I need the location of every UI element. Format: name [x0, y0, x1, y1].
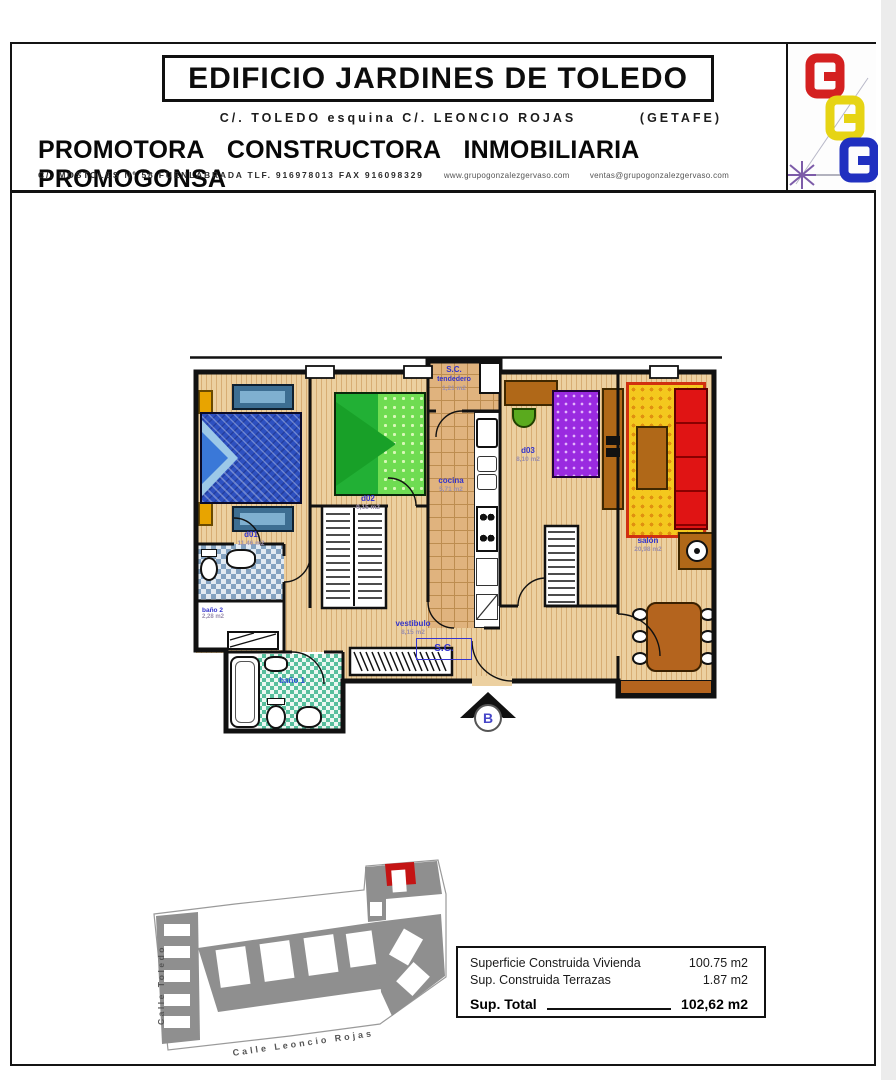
company-logo [786, 44, 876, 190]
summary-label: Superficie Construida Vivienda [470, 955, 641, 972]
room-label-d02: d02 [333, 494, 403, 503]
summary-row-vivienda: Superficie Construida Vivienda 100.75 m2 [470, 955, 748, 972]
header: EDIFICIO JARDINES DE TOLEDO C/. TOLEDO e… [12, 44, 784, 190]
contact-address: C/. MOSTOLES Nº 58 FUENLABRADA TLF. 9169… [38, 170, 424, 180]
shaft [480, 363, 500, 393]
room-area-cocina: 5,71 m2 [429, 486, 473, 493]
dishwasher-diagonal [477, 595, 497, 619]
summary-row-terrazas: Sup. Construida Terrazas 1.87 m2 [470, 972, 748, 989]
site-plan: Calle Toledo Calle Leoncio Rojas [140, 852, 470, 1067]
room-area-d01: 11,46 m2 [216, 540, 286, 547]
room-area-d02: 9,15 m2 [333, 504, 403, 511]
room-label-d03: d03 [493, 446, 563, 455]
company-line: PROMOTORA CONSTRUCTORA INMOBILIARIA PROM… [38, 136, 784, 194]
hanger-comb-d03 [548, 532, 575, 602]
logo-star-icon [788, 161, 816, 189]
logo-g-yellow [830, 100, 861, 136]
summary-value: 1.87 m2 [703, 972, 748, 989]
contact-email: ventas@grupogonzalezgervaso.com [590, 171, 729, 180]
floor-plan: d01 11,46 m2 d02 9,15 m2 d03 8,10 m2 coc… [188, 356, 728, 756]
room-area-vestibulo: 8,15 m2 [373, 629, 453, 636]
summary-total-value: 102,62 m2 [681, 995, 748, 1013]
entry-marker-b: B [474, 704, 502, 732]
room-label-tendedero-2: tendedero [428, 375, 480, 384]
sc-box-label: S.C. [416, 638, 472, 660]
room-area-salon: 20,98 m2 [608, 546, 688, 553]
room-label-d01: d01 [216, 530, 286, 539]
wardrobes [322, 506, 578, 608]
logo-g-red [810, 58, 841, 94]
closet-hatch [228, 632, 278, 649]
summary-total-label: Sup. Total [470, 995, 537, 1013]
room-area-d03: 8,10 m2 [493, 456, 563, 463]
logo-g-icon [788, 44, 878, 190]
surface-summary-table: Superficie Construida Vivienda 100.75 m2… [456, 946, 766, 1018]
room-label-tendedero-1: S.C. [428, 365, 480, 374]
room-label-cocina: cocina [429, 476, 473, 485]
page-title: EDIFICIO JARDINES DE TOLEDO [162, 55, 714, 102]
walls-overlay [188, 356, 728, 756]
room-area-tendedero: 1,21 m2 [428, 385, 480, 392]
summary-total-row: Sup. Total 102,62 m2 [470, 995, 748, 1013]
room-label-salon: salón [608, 536, 688, 545]
room-label-bano1: baño 1 [260, 676, 324, 685]
contact-line: C/. MOSTOLES Nº 58 FUENLABRADA TLF. 9169… [38, 170, 784, 180]
summary-value: 100.75 m2 [689, 955, 748, 972]
room-area-bano2: 2,28 m2 [202, 614, 252, 621]
logo-g-blue [844, 142, 875, 178]
site-plan-drawing [140, 852, 470, 1067]
summary-label: Sup. Construida Terrazas [470, 972, 611, 989]
page-edge-strip [881, 0, 896, 1080]
street-label-toledo: Calle Toledo [156, 940, 166, 1030]
header-divider [12, 190, 874, 193]
room-label-vestibulo: vestibulo [373, 619, 453, 628]
summary-total-line [547, 1008, 671, 1010]
city-label: (GETAFE) [640, 111, 722, 125]
contact-web: www.grupogonzalezgervaso.com [444, 171, 570, 180]
